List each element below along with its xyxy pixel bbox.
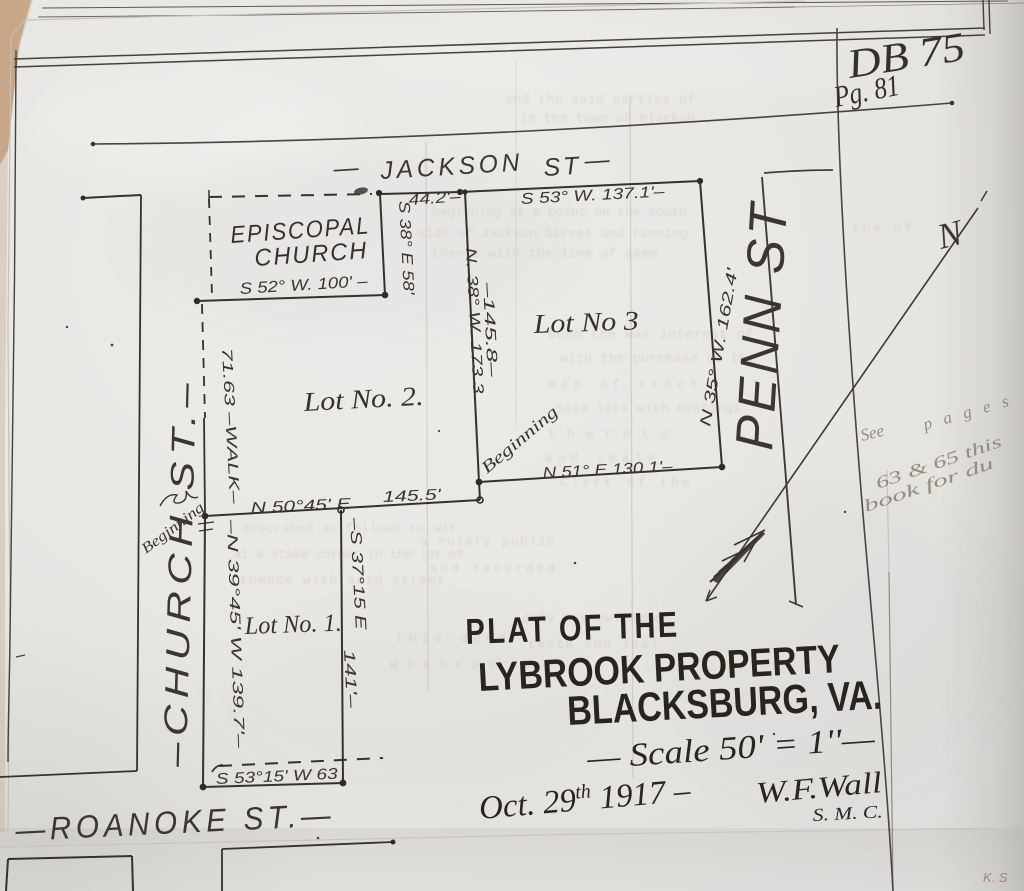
svg-text:and the said parties of: and the said parties of — [505, 92, 695, 107]
svg-text:—: — — [583, 145, 612, 175]
svg-text:K. S: K. S — [983, 870, 1008, 885]
svg-text:ST: ST — [543, 152, 583, 182]
svg-text:Lot No 3: Lot No 3 — [532, 305, 639, 339]
svg-text:PLAT OF THE: PLAT OF THE — [465, 604, 680, 652]
svg-text:side of Jackson Street and run: side of Jackson Street and running — [418, 226, 688, 241]
svg-text:S. M. C.: S. M. C. — [812, 801, 883, 825]
svg-text:145.5': 145.5' — [382, 486, 442, 506]
svg-text:a notary public: a notary public — [420, 534, 555, 549]
svg-text:beginning at a point on the so: beginning at a point on the south — [432, 205, 687, 220]
svg-text:Lot No. 1.: Lot No. 1. — [243, 610, 342, 640]
svg-text:—: — — [332, 153, 361, 183]
svg-text:Lot No. 2.: Lot No. 2. — [302, 381, 425, 417]
svg-text:141'–: 141'– — [340, 649, 360, 708]
